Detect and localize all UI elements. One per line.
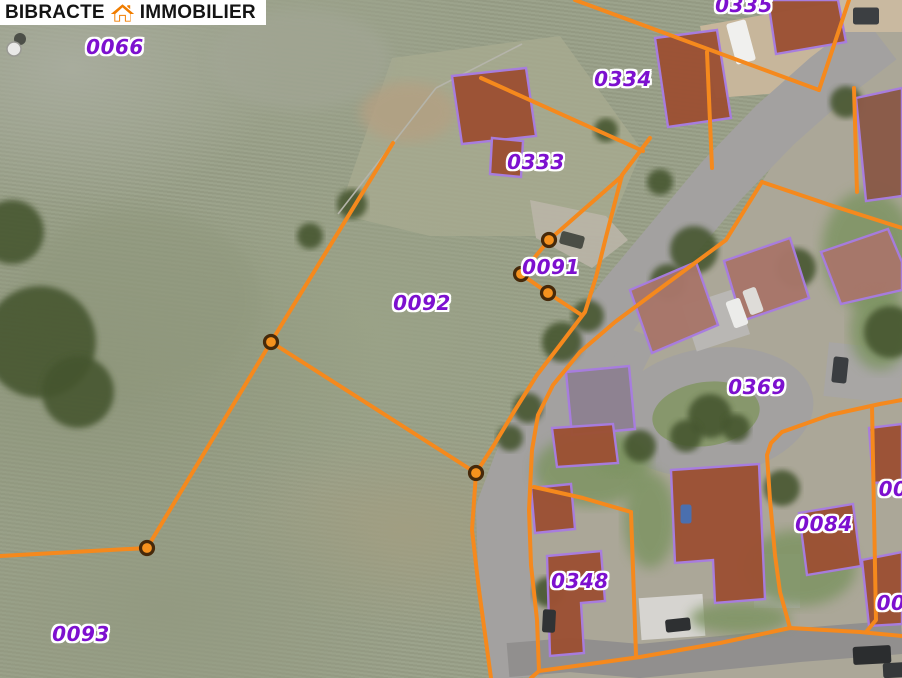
vehicle xyxy=(853,8,879,25)
building-outline xyxy=(452,68,536,144)
vehicle xyxy=(831,356,849,383)
vehicle xyxy=(542,609,556,633)
house-icon xyxy=(110,3,135,23)
tree xyxy=(647,169,673,195)
boundary-vertex-marker xyxy=(470,467,483,480)
vehicle xyxy=(681,505,692,524)
boundary-vertex-marker xyxy=(515,268,528,281)
parcel-boundary-line xyxy=(271,342,476,473)
brand-watermark: BIBRACTE IMMOBILIER xyxy=(0,0,266,25)
well xyxy=(7,42,21,56)
boundary-vertex-marker xyxy=(542,287,555,300)
boundary-vertex-marker xyxy=(543,234,556,247)
vehicle xyxy=(853,645,892,665)
tree xyxy=(722,414,750,442)
boundary-vertex-marker xyxy=(265,336,278,349)
parcel-boundary-line xyxy=(271,143,393,342)
brand-left: BIBRACTE xyxy=(5,3,105,22)
tree xyxy=(297,223,323,249)
cadastral-aerial-map[interactable]: 0066033503340333009100920369008403480093… xyxy=(0,0,902,678)
building-outline xyxy=(799,504,861,575)
vehicle xyxy=(665,617,691,633)
ground-patch xyxy=(360,82,456,142)
tree xyxy=(42,356,114,428)
brand-right: IMMOBILIER xyxy=(140,3,256,22)
boundary-vertex-marker xyxy=(141,542,154,555)
tree xyxy=(497,425,523,451)
map-overlay-svg xyxy=(0,0,902,678)
parcel-boundary-line xyxy=(0,548,147,556)
ground-patch xyxy=(210,10,390,110)
parcel-boundary-line xyxy=(521,240,549,293)
tree xyxy=(670,420,702,452)
tree xyxy=(624,430,656,462)
building-outline xyxy=(552,424,618,467)
building-outline xyxy=(490,138,523,177)
building-outline xyxy=(862,552,902,626)
vehicle xyxy=(883,662,902,678)
